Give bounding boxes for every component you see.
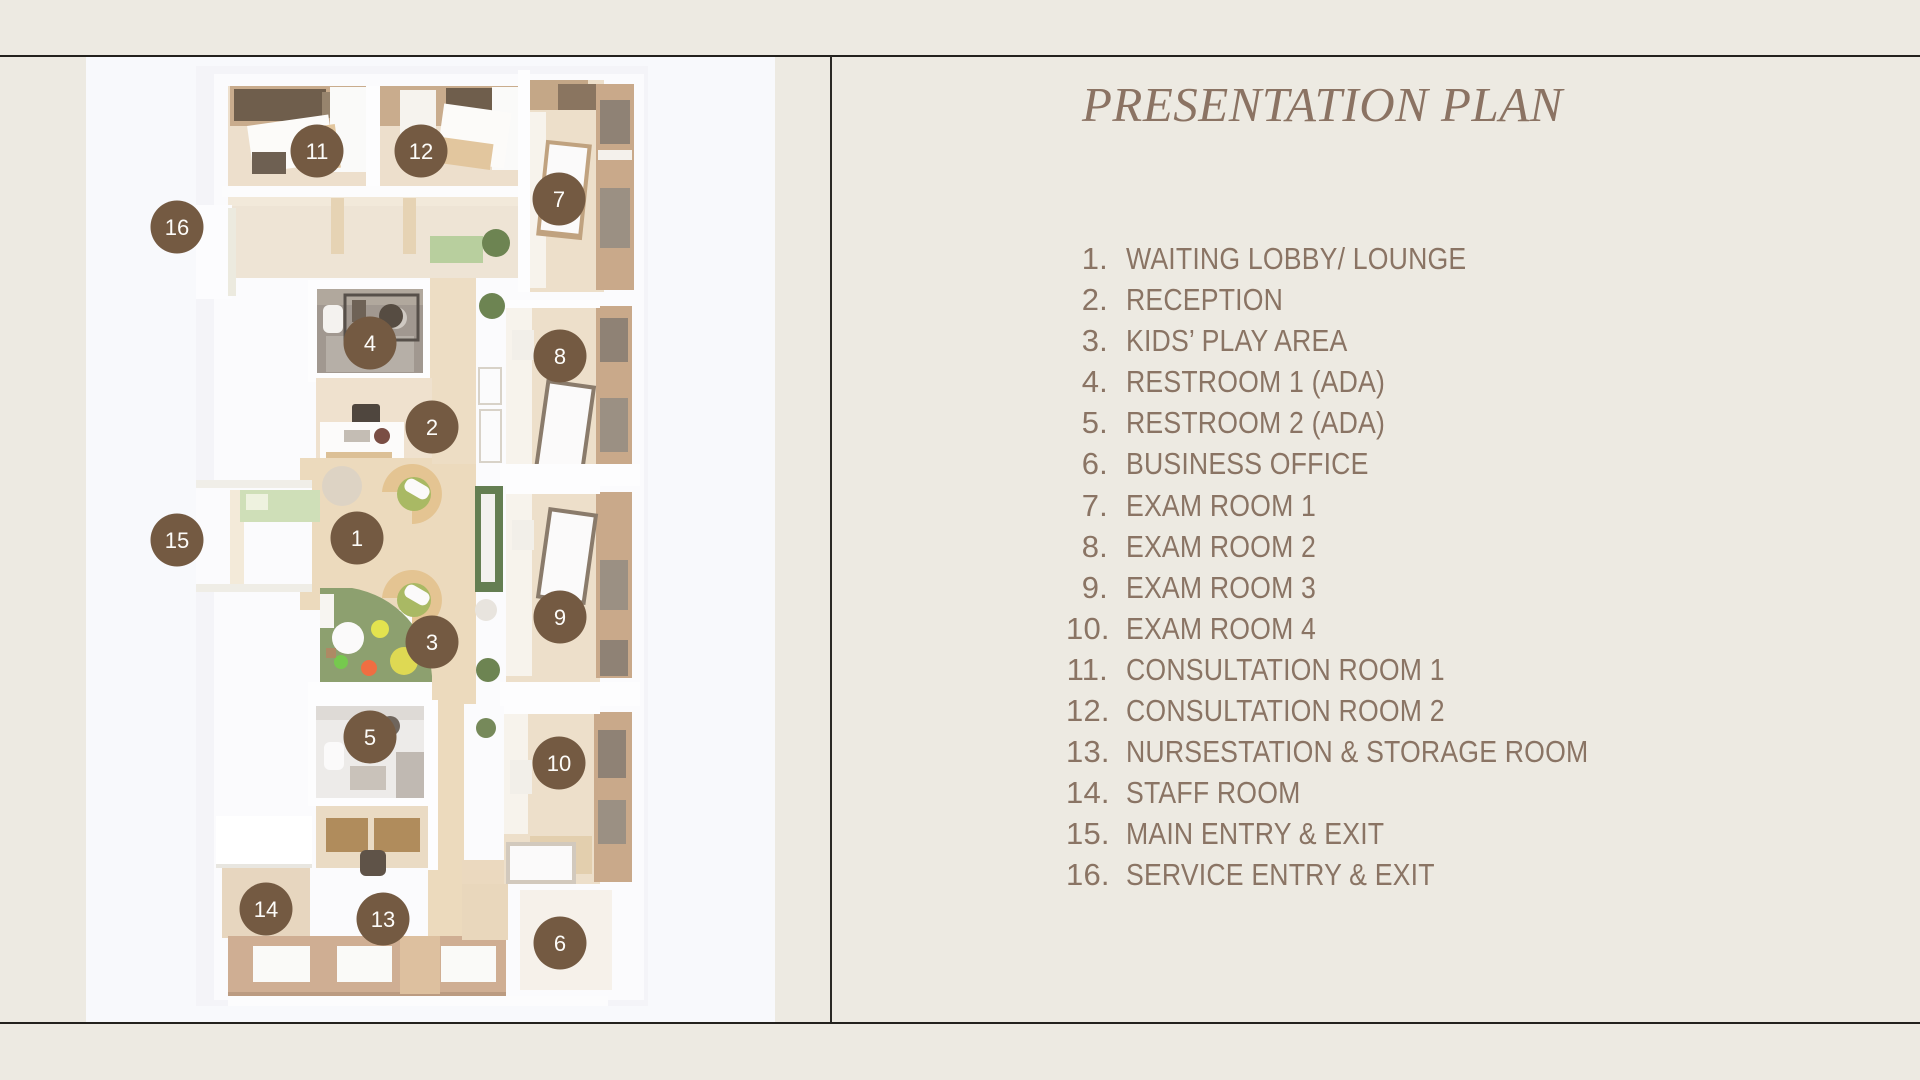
svg-text:15: 15 <box>165 528 189 553</box>
svg-text:14: 14 <box>254 897 278 922</box>
svg-text:10: 10 <box>547 751 571 776</box>
svg-text:9: 9 <box>554 605 566 630</box>
svg-text:7: 7 <box>553 187 565 212</box>
svg-text:11: 11 <box>306 139 329 164</box>
svg-text:1: 1 <box>351 526 363 551</box>
svg-text:6: 6 <box>554 931 566 956</box>
svg-text:2: 2 <box>426 415 438 440</box>
svg-text:13: 13 <box>371 907 395 932</box>
svg-text:3: 3 <box>426 630 438 655</box>
svg-text:5: 5 <box>364 725 376 750</box>
svg-text:16: 16 <box>165 215 189 240</box>
svg-text:4: 4 <box>364 331 376 356</box>
svg-text:12: 12 <box>409 139 433 164</box>
svg-text:8: 8 <box>554 344 566 369</box>
